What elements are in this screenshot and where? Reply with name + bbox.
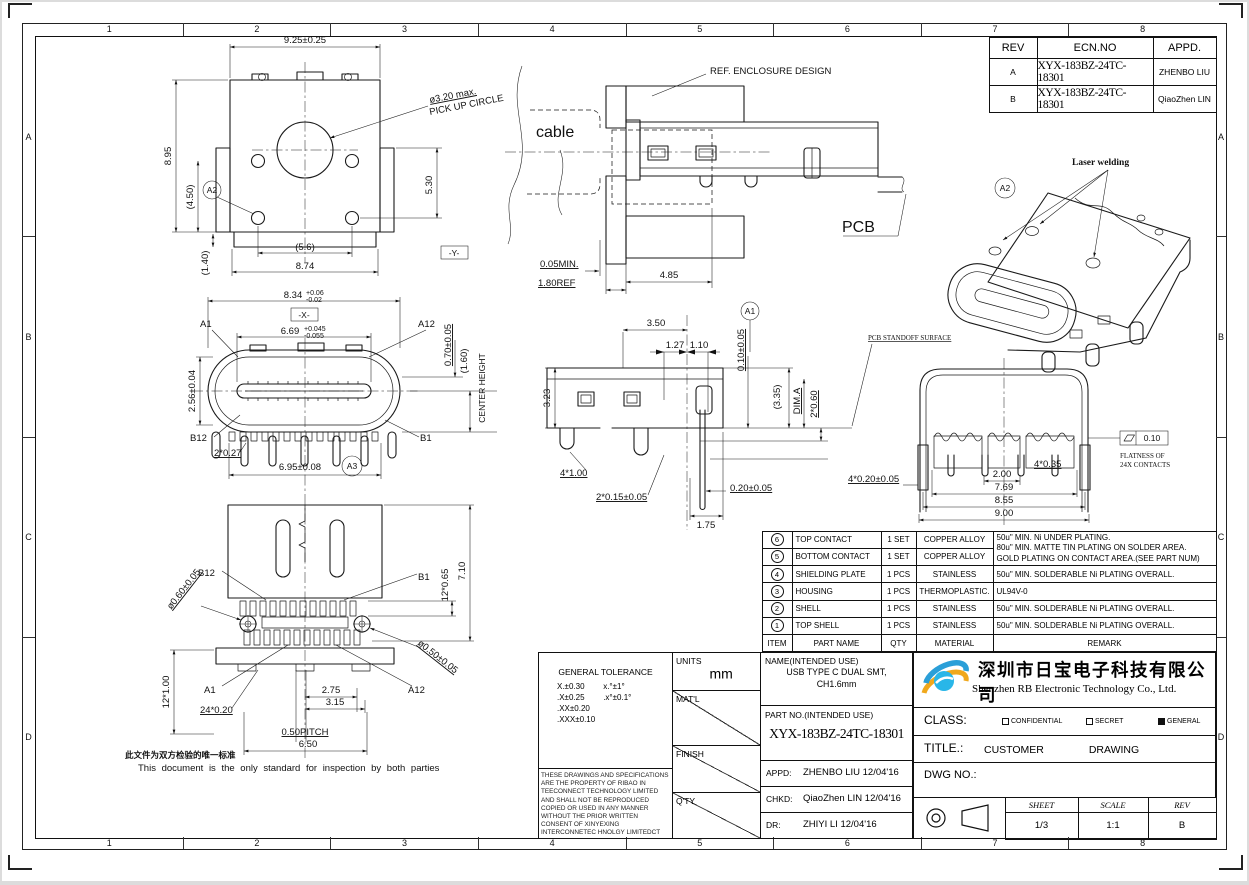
part-no-box: PART NO.(INTENDED USE) XYX-183BZ-24TC-18… [760, 705, 913, 761]
zone-label: 2 [184, 23, 332, 36]
chkd-value: QiaoZhen LIN 12/04'16 [803, 793, 901, 804]
appd-row: APPD: ZHENBO LIU 12/04'16 [760, 760, 913, 787]
checkbox-filled [1158, 718, 1165, 725]
material-cell: COPPER ALLOY [916, 531, 994, 549]
dr-row: DR: ZHIYI LI 12/04'16 [760, 812, 913, 839]
name-value-1: USB TYPE C DUAL SMT, [761, 666, 912, 678]
qty-cell: 1 PCS [881, 565, 917, 583]
tolerance-value: .XXX±0.10 [557, 714, 603, 725]
class-option-general: GENERAL [1158, 718, 1200, 725]
checkbox-empty [1086, 718, 1093, 725]
remark-header: REMARK [993, 634, 1217, 652]
zone-label: A [22, 37, 35, 237]
remark-cell: 50u" MIN. SOLDERABLE Ni PLATING OVERALL. [993, 600, 1217, 618]
part-name-cell: BOTTOM CONTACT [792, 548, 882, 566]
tolerance-title: GENERAL TOLERANCE [539, 667, 672, 677]
zone-label: D [1216, 638, 1226, 837]
zone-label: 5 [627, 23, 775, 36]
part-name-cell: TOP CONTACT [792, 531, 882, 549]
remark-cell: 50u" MIN. SOLDERABLE Ni PLATING OVERALL. [993, 617, 1217, 635]
name-label: NAME(INTENDED USE) [765, 656, 912, 666]
zone-label: 1 [36, 837, 184, 849]
remark-cell: 50u" MIN. SOLDERABLE Ni PLATING OVERALL. [993, 565, 1217, 583]
tolerance-table: X.±0.30x.°±1° .X±0.25.x°±0.1° .XX±0.20 .… [557, 681, 639, 725]
item-header: ITEM [762, 634, 793, 652]
dwg-no-row: DWG NO.: [913, 762, 1216, 798]
class-option-secret: SECRET [1086, 718, 1123, 725]
ecn-header: ECN.NO [1037, 37, 1154, 59]
zone-band-right: ABCD [1216, 37, 1226, 837]
part-name-cell: TOP SHELL [792, 617, 882, 635]
units-label: UNITS [676, 656, 702, 666]
qty-box: Q'TY [672, 792, 761, 839]
zone-label: 4 [479, 23, 627, 36]
trim-mark [8, 3, 32, 18]
title-value: CUSTOMER DRAWING [984, 744, 1139, 756]
company-name-en: Shenzhen RB Electronic Technology Co., L… [972, 683, 1176, 695]
material-header: MATERIAL [916, 634, 994, 652]
zone-label: 7 [922, 23, 1070, 36]
trim-mark [1219, 855, 1243, 870]
sheet-scale-rev-table: SHEET SCALE REV 1/3 1:1 B [1005, 797, 1216, 839]
tolerance-value: X.±0.30 [557, 681, 603, 692]
company-name-cn: 深圳市日宝电子科技有限公司 [978, 657, 1215, 707]
item-cell: 3 [762, 582, 793, 600]
trim-mark [1219, 3, 1243, 18]
part-no-value: XYX-183BZ-24TC-18301 [761, 726, 912, 742]
footer-note-en: This document is the only standard for i… [138, 763, 439, 774]
units-box: UNITS mm [672, 652, 761, 691]
zone-label: 3 [331, 23, 479, 36]
cad-drawing-sheet: 9.25±0.25 8.95 (4.50) A2 (1.40) 5.30 (5.… [0, 0, 1249, 885]
matl-label: MAT'L [676, 694, 700, 704]
checkbox-empty [1002, 718, 1009, 725]
tolerance-value: .XX±0.20 [557, 703, 603, 714]
finish-label: FINISH [676, 749, 704, 759]
zone-label: C [1216, 438, 1226, 638]
qty-cell: 1 PCS [881, 600, 917, 618]
zone-label: 8 [1069, 23, 1216, 36]
part-no-label: PART NO.(INTENDED USE) [765, 710, 912, 720]
parts-table: 6 TOP CONTACT 1 SET COPPER ALLOY 50u" MI… [762, 531, 1216, 652]
qty-cell: 1 SET [881, 548, 917, 566]
zone-label: A [1216, 37, 1226, 237]
title-label: TITLE.: [924, 741, 963, 755]
company-logo [916, 655, 974, 707]
sheet-value: 1/3 [1005, 812, 1079, 840]
trim-mark [8, 855, 32, 870]
legal-notice: THESE DRAWINGS AND SPECIFICATIONS ARE TH… [538, 768, 673, 839]
zone-label: C [22, 438, 35, 638]
material-cell: STAINLESS [916, 617, 994, 635]
material-cell: STAINLESS [916, 600, 994, 618]
footer-note-cn: 此文件为双方检验的唯一标准 [125, 749, 236, 761]
remark-cell: UL94V-0 [993, 582, 1217, 600]
scale-header: SCALE [1078, 797, 1149, 813]
zone-label: 2 [184, 837, 332, 849]
units-value: mm [710, 665, 733, 681]
revision-table: REV ECN.NO APPD. A XYX-183BZ-24TC-18301 … [989, 37, 1216, 112]
qty-header: QTY [881, 634, 917, 652]
finish-box: FINISH [672, 745, 761, 793]
zone-label: 3 [331, 837, 479, 849]
qty-cell: 1 PCS [881, 582, 917, 600]
name-value-2: CH1.6mm [761, 678, 912, 690]
dr-value: ZHIYI LI 12/04'16 [803, 819, 877, 830]
appd-value: ZHENBO LIU 12/04'16 [803, 767, 899, 778]
tolerance-value [603, 714, 639, 725]
item-cell: 1 [762, 617, 793, 635]
class-option-confidential: CONFIDENTIAL [1002, 718, 1062, 725]
dr-label: DR: [766, 820, 781, 830]
material-box: MAT'L [672, 690, 761, 746]
general-tolerance-box: GENERAL TOLERANCE X.±0.30x.°±1° .X±0.25.… [538, 652, 673, 769]
zone-band-left: ABCD [22, 37, 35, 837]
item-cell: 6 [762, 531, 793, 549]
material-cell: COPPER ALLOY [916, 548, 994, 566]
rev-header: REV [1148, 797, 1217, 813]
item-cell: 5 [762, 548, 793, 566]
appd-cell: ZHENBO LIU [1153, 58, 1217, 86]
material-cell: STAINLESS [916, 565, 994, 583]
ecn-cell: XYX-183BZ-24TC-18301 [1037, 85, 1154, 113]
name-box: NAME(INTENDED USE) USB TYPE C DUAL SMT, … [760, 652, 913, 706]
remark-cell-contacts: 50u" MIN. Ni UNDER PLATING. 80u" MIN. MA… [993, 531, 1217, 567]
chkd-label: CHKD: [766, 794, 792, 804]
zone-label: D [22, 638, 35, 837]
appd-header: APPD. [1153, 37, 1217, 59]
part-name-cell: SHELL [792, 600, 882, 618]
rev-cell: B [989, 85, 1038, 113]
rev-cell: A [989, 58, 1038, 86]
company-header: 深圳市日宝电子科技有限公司 Shenzhen RB Electronic Tec… [913, 652, 1216, 708]
part-name-cell: HOUSING [792, 582, 882, 600]
appd-cell: QiaoZhen LIN [1153, 85, 1217, 113]
zone-label: 6 [774, 23, 922, 36]
tolerance-value: x.°±1° [603, 681, 639, 692]
item-cell: 4 [762, 565, 793, 583]
projection-box [913, 797, 1006, 839]
tolerance-value: .X±0.25 [557, 692, 603, 703]
projection-symbol [914, 798, 1004, 838]
zone-label: 1 [36, 23, 184, 36]
tolerance-value: .x°±0.1° [603, 692, 639, 703]
zone-label: B [1216, 237, 1226, 437]
tolerance-value [603, 703, 639, 714]
qty-cell: 1 SET [881, 531, 917, 549]
rev-header: REV [989, 37, 1038, 59]
chkd-row: CHKD: QiaoZhen LIN 12/04'16 [760, 786, 913, 813]
qty-cell: 1 PCS [881, 617, 917, 635]
appd-label: APPD: [766, 768, 792, 778]
rev-value: B [1148, 812, 1217, 840]
class-row: CLASS: CONFIDENTIAL SECRET GENERAL [913, 707, 1216, 736]
material-cell: THERMOPLASTIC. [916, 582, 994, 600]
dwg-no-label: DWG NO.: [924, 769, 977, 781]
class-label: CLASS: [924, 713, 967, 727]
zone-band-top: 12345678 [36, 23, 1216, 36]
sheet-header: SHEET [1005, 797, 1079, 813]
part-name-cell: SHIELDING PLATE [792, 565, 882, 583]
title-row: TITLE.: CUSTOMER DRAWING [913, 735, 1216, 763]
item-cell: 2 [762, 600, 793, 618]
qty-label: Q'TY [676, 796, 695, 806]
part-name-header: PART NAME [792, 634, 882, 652]
scale-value: 1:1 [1078, 812, 1149, 840]
ecn-cell: XYX-183BZ-24TC-18301 [1037, 58, 1154, 86]
zone-label: B [22, 237, 35, 437]
